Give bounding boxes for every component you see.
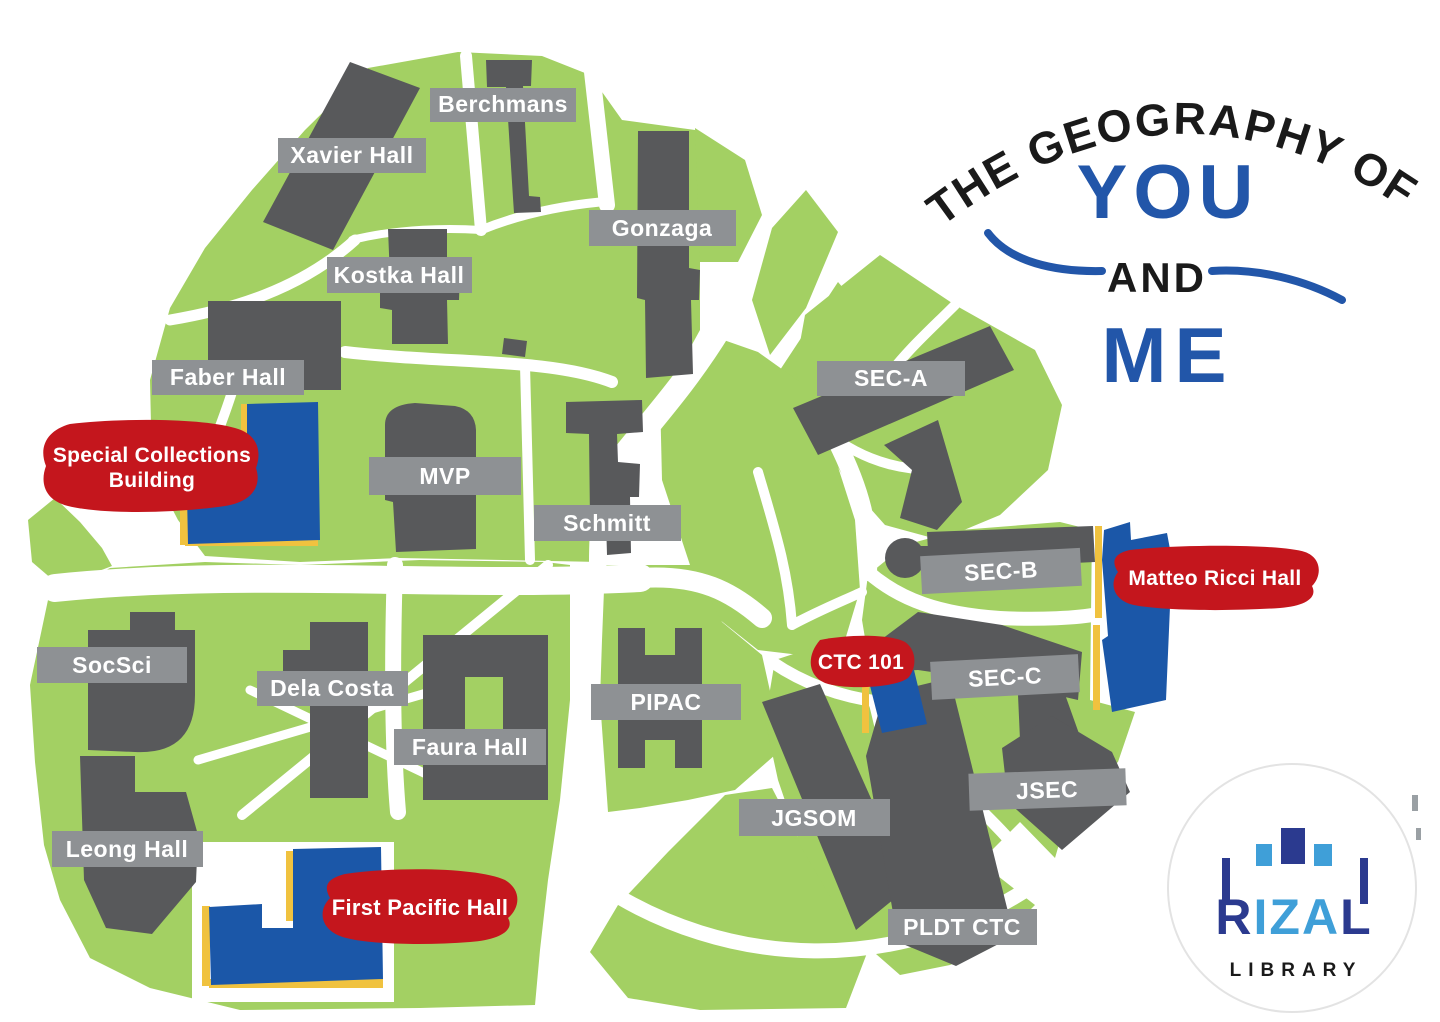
svg-text:SEC-A: SEC-A (854, 365, 928, 391)
label-special-collections-line2: Building (109, 469, 195, 492)
building-label-kostka-hall: Kostka Hall (327, 257, 472, 293)
map-speck-1 (1412, 795, 1418, 811)
svg-text:Berchmans: Berchmans (438, 91, 568, 117)
building-label-faura-hall: Faura Hall (394, 729, 546, 765)
svg-text:Gonzaga: Gonzaga (612, 215, 713, 241)
map-speck-2 (1416, 828, 1421, 840)
building-label-gonzaga: Gonzaga (589, 210, 736, 246)
rizal-library-logo: RIZAL LIBRARY (1168, 764, 1416, 1012)
building-label-jgsom: JGSOM (739, 799, 890, 836)
svg-text:Leong Hall: Leong Hall (66, 836, 189, 862)
logo-subtitle: LIBRARY (1230, 960, 1363, 981)
svg-text:SEC-C: SEC-C (967, 662, 1042, 692)
building-small-square (502, 338, 527, 357)
svg-text:Xavier Hall: Xavier Hall (290, 142, 413, 168)
building-label-socsci: SocSci (37, 647, 187, 683)
building-label-faber-hall: Faber Hall (152, 360, 304, 395)
title-swash-left (988, 233, 1102, 271)
svg-text:PIPAC: PIPAC (630, 689, 701, 715)
svg-text:JGSOM: JGSOM (771, 805, 857, 831)
svg-text:Faura Hall: Faura Hall (412, 734, 528, 760)
svg-text:PLDT CTC: PLDT CTC (903, 914, 1021, 940)
building-label-pldt-ctc: PLDT CTC (888, 909, 1037, 945)
svg-text:Dela Costa: Dela Costa (270, 675, 394, 701)
svg-text:MVP: MVP (419, 463, 470, 489)
logo-wordmark: RIZAL (1215, 889, 1372, 945)
building-label-leong-hall: Leong Hall (52, 831, 203, 867)
label-matteo-ricci: Matteo Ricci Hall (1128, 567, 1301, 590)
building-label-mvp: MVP (369, 457, 521, 495)
label-first-pacific: First Pacific Hall (332, 895, 509, 920)
building-label-pipac: PIPAC (591, 684, 741, 720)
campus-map-poster: Berchmans Xavier Hall Gonzaga Kostka Hal… (0, 0, 1440, 1022)
label-ctc-101: CTC 101 (818, 651, 904, 674)
svg-text:SocSci: SocSci (72, 652, 152, 678)
svg-text:Schmitt: Schmitt (563, 510, 651, 536)
building-label-berchmans: Berchmans (430, 88, 576, 122)
building-label-sec-c: SEC-C (930, 654, 1080, 700)
title-you: YOU (1077, 150, 1260, 235)
svg-text:Faber Hall: Faber Hall (170, 364, 286, 390)
campus-map: Berchmans Xavier Hall Gonzaga Kostka Hal… (0, 0, 1440, 1022)
title-swash-right (1212, 271, 1342, 300)
label-special-collections-line1: Special Collections (53, 444, 251, 467)
building-label-schmitt: Schmitt (534, 505, 681, 541)
title-and: AND (1107, 254, 1207, 301)
svg-text:Kostka Hall: Kostka Hall (334, 262, 465, 288)
building-dela-costa (310, 622, 368, 798)
building-label-dela-costa: Dela Costa (257, 671, 408, 706)
svg-text:JSEC: JSEC (1016, 776, 1079, 804)
building-label-sec-a: SEC-A (817, 361, 965, 396)
title-me: ME (1102, 311, 1235, 399)
building-label-jsec: JSEC (968, 768, 1126, 810)
svg-text:SEC-B: SEC-B (963, 556, 1038, 586)
building-label-xavier-hall: Xavier Hall (278, 138, 426, 173)
